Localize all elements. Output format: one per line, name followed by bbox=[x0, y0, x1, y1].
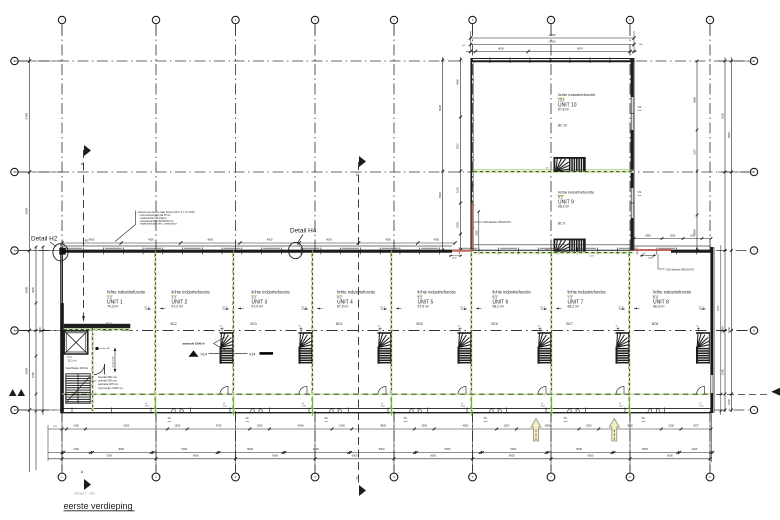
svg-text:67,9 m²: 67,9 m² bbox=[337, 304, 349, 308]
svg-text:140_he: 140_he bbox=[618, 307, 624, 309]
svg-text:BC 9: BC 9 bbox=[558, 222, 565, 226]
svg-text:4500: 4500 bbox=[208, 238, 214, 241]
svg-text:4000: 4000 bbox=[31, 287, 35, 293]
svg-text:13600: 13600 bbox=[548, 40, 556, 44]
svg-text:BC3: BC3 bbox=[251, 322, 257, 326]
svg-text:8400: 8400 bbox=[727, 132, 731, 138]
svg-text:Tnnn: Tnnn bbox=[302, 406, 307, 408]
svg-text:1500: 1500 bbox=[586, 424, 592, 428]
svg-text:4237: 4237 bbox=[693, 424, 699, 428]
svg-text:6000: 6000 bbox=[588, 454, 594, 458]
svg-text:B: B bbox=[753, 329, 755, 333]
svg-text:som: som bbox=[246, 421, 250, 423]
svg-text:som: som bbox=[638, 110, 642, 112]
svg-text:68,3 m²: 68,3 m² bbox=[653, 304, 665, 308]
svg-text:BC 10: BC 10 bbox=[558, 124, 567, 128]
svg-text:som: som bbox=[564, 421, 568, 423]
svg-text:5000: 5000 bbox=[247, 447, 253, 451]
svg-text:4500: 4500 bbox=[148, 238, 154, 241]
svg-text:- staalconstructie verz. const: - staalconstructie verz. constructeur bbox=[139, 223, 177, 226]
svg-text:BC6: BC6 bbox=[492, 322, 498, 326]
svg-text:optrede 200 mm.: optrede 200 mm. bbox=[98, 379, 118, 383]
svg-text:140_he: 140_he bbox=[222, 307, 228, 309]
svg-text:4500: 4500 bbox=[380, 424, 386, 428]
svg-text:BC5: BC5 bbox=[417, 322, 423, 326]
svg-text:lichte industriefunctie: lichte industriefunctie bbox=[172, 290, 211, 295]
svg-text:6000: 6000 bbox=[352, 454, 358, 458]
svg-text:lichte industriefunctie: lichte industriefunctie bbox=[493, 290, 532, 295]
svg-text:aantrede 1000-el: aantrede 1000-el bbox=[183, 342, 205, 346]
svg-text:67,9 m²: 67,9 m² bbox=[252, 304, 264, 308]
svg-text:5000: 5000 bbox=[313, 447, 319, 451]
svg-text:5000: 5000 bbox=[510, 447, 516, 451]
svg-text:C&S-Damfer-WS100-PS: C&S-Damfer-WS100-PS bbox=[666, 267, 695, 271]
svg-text:5000: 5000 bbox=[379, 447, 385, 451]
svg-text:1500: 1500 bbox=[339, 424, 345, 428]
svg-text:68,2 m²: 68,2 m² bbox=[568, 304, 580, 308]
svg-text:8157: 8157 bbox=[456, 143, 460, 149]
svg-text:V14: V14 bbox=[249, 352, 255, 356]
svg-text:vrije hoogte 2100 mm.: vrije hoogte 2100 mm. bbox=[98, 386, 124, 390]
svg-text:4500: 4500 bbox=[385, 238, 391, 241]
svg-text:15,2 m²: 15,2 m² bbox=[68, 358, 77, 362]
svg-text:5400: 5400 bbox=[25, 112, 29, 119]
svg-text:6000: 6000 bbox=[272, 454, 278, 458]
svg-text:C&S-Damfer-WS100-PS: C&S-Damfer-WS100-PS bbox=[483, 220, 512, 224]
svg-text:C: C bbox=[753, 249, 755, 253]
svg-text:2400: 2400 bbox=[456, 222, 460, 228]
svg-text:2150: 2150 bbox=[73, 447, 79, 451]
svg-text:6000: 6000 bbox=[509, 454, 515, 458]
svg-text:13800: 13800 bbox=[548, 33, 556, 37]
svg-text:som: som bbox=[404, 421, 408, 423]
svg-text:6250: 6250 bbox=[124, 424, 130, 428]
svg-text:lichte industriefunctie: lichte industriefunctie bbox=[558, 190, 594, 195]
svg-text:4500: 4500 bbox=[463, 424, 469, 428]
svg-text:lichte industriefunctie: lichte industriefunctie bbox=[252, 290, 291, 295]
svg-text:BC4: BC4 bbox=[336, 322, 342, 326]
svg-text:5228: 5228 bbox=[720, 113, 724, 119]
svg-text:6000: 6000 bbox=[430, 454, 436, 458]
svg-text:4500: 4500 bbox=[267, 238, 273, 241]
svg-text:1430: 1430 bbox=[690, 235, 696, 238]
svg-text:4060: 4060 bbox=[456, 79, 460, 85]
svg-text:som: som bbox=[325, 421, 329, 423]
svg-text:2400: 2400 bbox=[692, 447, 698, 451]
svg-text:1500: 1500 bbox=[456, 187, 460, 193]
svg-text:68,2 m²: 68,2 m² bbox=[558, 204, 570, 208]
svg-text:BC8: BC8 bbox=[652, 322, 658, 326]
svg-text:som: som bbox=[642, 421, 646, 423]
svg-text:4000: 4000 bbox=[498, 47, 504, 51]
svg-text:Tnnn: Tnnn bbox=[145, 406, 150, 408]
svg-text:lichte industriefunctie: lichte industriefunctie bbox=[568, 290, 607, 295]
svg-text:2408: 2408 bbox=[476, 230, 478, 236]
svg-text:2107: 2107 bbox=[692, 149, 696, 155]
svg-text:6026: 6026 bbox=[438, 105, 442, 111]
svg-text:70,3 m²: 70,3 m² bbox=[107, 304, 119, 308]
svg-text:5000: 5000 bbox=[642, 447, 648, 451]
svg-text:140_he: 140_he bbox=[699, 307, 705, 309]
svg-text:5000: 5000 bbox=[727, 327, 731, 333]
svg-text:breedte 950 mm.: breedte 950 mm. bbox=[98, 375, 118, 379]
svg-text:6000: 6000 bbox=[25, 207, 29, 214]
svg-text:1500: 1500 bbox=[504, 424, 510, 428]
svg-text:som: som bbox=[638, 195, 642, 197]
svg-text:lichte industriefunctie: lichte industriefunctie bbox=[107, 290, 146, 295]
svg-text:8374: 8374 bbox=[577, 47, 583, 51]
svg-text:lichte industriefunctie: lichte industriefunctie bbox=[558, 92, 596, 97]
svg-text:1500: 1500 bbox=[174, 424, 180, 428]
svg-text:4500: 4500 bbox=[434, 238, 440, 241]
svg-text:8000: 8000 bbox=[38, 327, 42, 333]
svg-text:6000: 6000 bbox=[193, 454, 199, 458]
svg-text:1500: 1500 bbox=[670, 235, 676, 238]
svg-text:lichte industriefunctie: lichte industriefunctie bbox=[337, 290, 376, 295]
svg-text:1450: 1450 bbox=[73, 424, 79, 428]
svg-text:4500: 4500 bbox=[326, 238, 332, 241]
svg-text:eerste verdieping: eerste verdieping bbox=[64, 501, 133, 511]
svg-text:Tnnn: Tnnn bbox=[619, 406, 624, 408]
svg-text:3960: 3960 bbox=[645, 235, 651, 238]
svg-text:V14: V14 bbox=[201, 352, 207, 356]
svg-text:Tnnn: Tnnn bbox=[223, 406, 228, 408]
svg-text:BC2: BC2 bbox=[171, 322, 177, 326]
svg-text:C: C bbox=[356, 476, 359, 480]
svg-text:VS: VS bbox=[638, 190, 642, 194]
svg-text:Tnnn: Tnnn bbox=[541, 406, 546, 408]
svg-text:67,9 m²: 67,9 m² bbox=[418, 304, 430, 308]
svg-text:lichte industriefunctie: lichte industriefunctie bbox=[418, 290, 457, 295]
svg-text:1500: 1500 bbox=[257, 424, 263, 428]
svg-text:som: som bbox=[168, 421, 172, 423]
svg-text:5000: 5000 bbox=[576, 447, 582, 451]
svg-text:entree_400: entree_400 bbox=[100, 347, 111, 350]
svg-text:Detail H4: Detail H4 bbox=[290, 228, 317, 235]
svg-text:1500: 1500 bbox=[31, 372, 35, 378]
svg-text:140_he: 140_he bbox=[540, 307, 546, 309]
svg-text:2408: 2408 bbox=[648, 258, 654, 260]
svg-text:schaal 1 : 100: schaal 1 : 100 bbox=[74, 491, 95, 495]
svg-text:140_he: 140_he bbox=[301, 307, 307, 309]
svg-text:4500: 4500 bbox=[545, 424, 551, 428]
svg-text:68,2 m²: 68,2 m² bbox=[493, 304, 505, 308]
svg-text:Detail H2: Detail H2 bbox=[31, 236, 58, 243]
svg-text:6000: 6000 bbox=[25, 286, 29, 293]
svg-text:9727: 9727 bbox=[716, 305, 720, 311]
svg-text:1000: 1000 bbox=[727, 399, 731, 405]
svg-text:BC7: BC7 bbox=[567, 322, 573, 326]
svg-text:140_he: 140_he bbox=[460, 307, 466, 309]
svg-text:67,2 m²: 67,2 m² bbox=[172, 304, 184, 308]
svg-text:6000: 6000 bbox=[25, 367, 29, 374]
svg-text:Tnnn: Tnnn bbox=[381, 406, 386, 408]
svg-text:beluchtkade 1000=el: beluchtkade 1000=el bbox=[66, 367, 89, 370]
svg-text:4628: 4628 bbox=[118, 447, 124, 451]
svg-text:5940: 5940 bbox=[438, 192, 442, 198]
svg-text:lichte industriefunctie: lichte industriefunctie bbox=[653, 290, 692, 295]
svg-text:VS: VS bbox=[638, 105, 642, 109]
svg-text:87,8 m²: 87,8 m² bbox=[558, 107, 570, 111]
svg-text:5000: 5000 bbox=[181, 447, 187, 451]
svg-text:C: C bbox=[356, 173, 359, 177]
svg-text:4500: 4500 bbox=[298, 424, 304, 428]
svg-text:4500: 4500 bbox=[89, 238, 95, 241]
svg-text:1500: 1500 bbox=[668, 424, 674, 428]
svg-text:5000: 5000 bbox=[445, 447, 451, 451]
svg-text:140_he: 140_he bbox=[144, 307, 150, 309]
svg-text:hoogte 2300: hoogte 2300 bbox=[112, 356, 115, 368]
svg-text:140_he: 140_he bbox=[380, 307, 386, 309]
svg-text:Tnnn: Tnnn bbox=[699, 406, 704, 408]
svg-text:0.2: 0.2 bbox=[68, 355, 73, 359]
svg-text:1500: 1500 bbox=[421, 424, 427, 428]
svg-text:4750: 4750 bbox=[216, 424, 222, 428]
svg-text:aantrede 185 mm.: aantrede 185 mm. bbox=[98, 382, 119, 386]
svg-text:A: A bbox=[753, 408, 755, 412]
svg-text:6000: 6000 bbox=[667, 454, 673, 458]
svg-text:4068: 4068 bbox=[692, 97, 696, 103]
svg-text:Tnnn: Tnnn bbox=[461, 406, 466, 408]
svg-text:7200: 7200 bbox=[106, 454, 112, 458]
svg-text:som: som bbox=[484, 421, 488, 423]
